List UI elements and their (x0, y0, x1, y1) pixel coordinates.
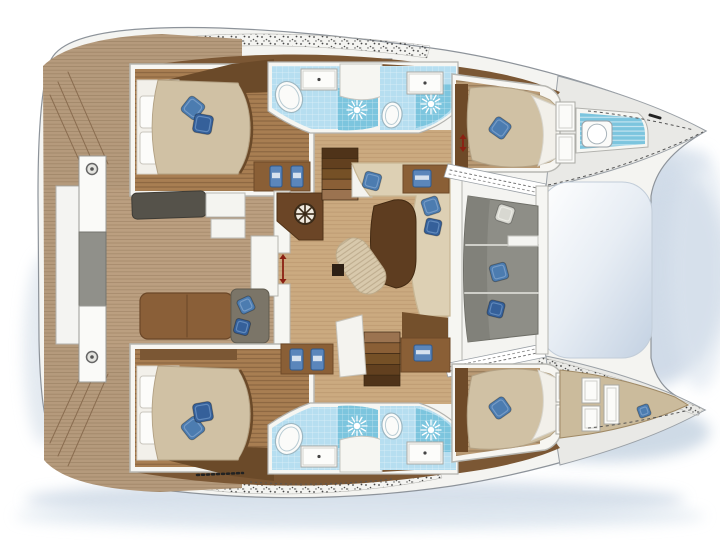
towel-aft-stb-2 (311, 349, 324, 370)
fwd-sofa-tray (508, 236, 538, 246)
forepeak-door-2 (582, 406, 600, 431)
cabin-fwd-port-trim (455, 84, 468, 168)
catamaran-floorplan-canvas (0, 0, 720, 540)
cockpit-bench-aft (132, 191, 207, 220)
side-table (332, 264, 344, 276)
wardrobe-port-door-1 (556, 102, 575, 131)
winch-ring-bottom-icon (87, 352, 98, 363)
galley-counter (251, 236, 278, 296)
pillow-blue-aft-stb-2 (192, 401, 214, 423)
sink-counter-stb-aft (301, 446, 337, 467)
forepeak-door-1 (582, 378, 600, 403)
seatback-white (336, 315, 366, 377)
wardrobe-port-door-2 (556, 134, 575, 163)
cockpit-module-1 (206, 193, 245, 217)
pillow-cockpit-2 (233, 318, 251, 336)
bathroom-stb-divider (340, 436, 382, 472)
davit-arm-center (79, 232, 106, 306)
vanity-aft-stb (281, 344, 333, 374)
pillow-fwd-cockpit-navy (486, 299, 505, 318)
towel-aft-port-1 (270, 166, 282, 187)
cabin-aft-starboard-shelf (140, 349, 237, 360)
water-shadow-bottom-wide (15, 502, 705, 530)
bathroom-port-divider (340, 64, 382, 100)
pillow-salon-sofa-3 (424, 218, 443, 237)
cabin-fwd-starboard-trim (455, 368, 468, 452)
transom-platform (56, 186, 80, 344)
towel-fwd-stb (414, 345, 432, 361)
stairs-starboard (364, 332, 400, 386)
davit-post-bottom (79, 306, 106, 382)
toilet-bow-port (582, 121, 612, 147)
cockpit-module-2 (211, 219, 245, 238)
helm-wheel-icon (295, 204, 315, 224)
sink-counter-port-fwd (407, 72, 443, 94)
winch-ring-top-icon (87, 164, 98, 175)
towel-aft-port-2 (291, 166, 303, 187)
pillow-salon-sofa-1 (362, 171, 383, 192)
catamaran-floorplan-page (0, 0, 720, 540)
trampoline (540, 182, 652, 358)
pillow-fwd-cockpit-blue (489, 262, 510, 283)
pillow-blue-aft-port-2 (192, 113, 214, 135)
fwd-sofa-backrest (464, 196, 490, 342)
towel-fwd-port-side (413, 170, 431, 187)
towel-aft-stb-1 (290, 349, 303, 370)
sink-counter-stb-fwd (407, 442, 443, 464)
sink-counter-port-aft (301, 69, 337, 90)
forepeak-door-3 (604, 385, 619, 424)
